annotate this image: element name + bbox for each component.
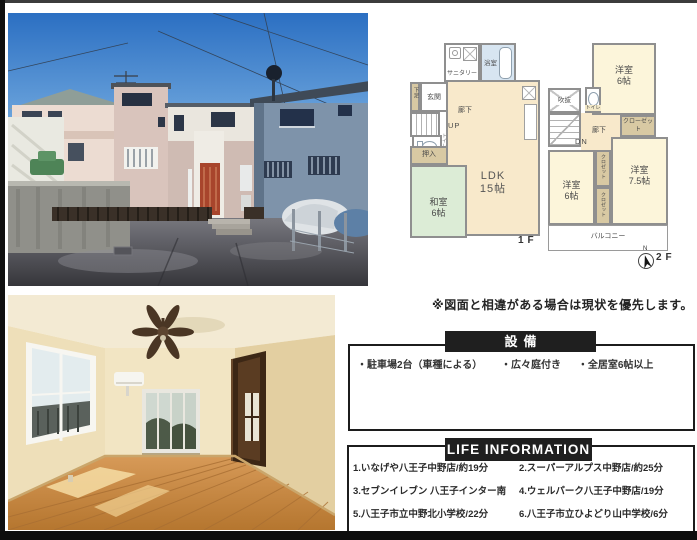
ldk-size: 15帖 [480,183,506,195]
life-information-items: 1.いなげや八王子中野店/約19分 2.スーパーアルプス中野店/約25分 3.セ… [353,462,689,521]
frame-bottom [0,531,697,540]
life-item: 3.セブンイレブン 八王子インター南 [353,485,519,498]
flyer-page: LDK 15帖 サニタリー 浴室 下足 玄関 トイレ 押入 [0,0,697,540]
room1-size: 6帖 [617,76,631,86]
sanitary-label: サニタリー [446,71,478,78]
bathtub-icon [499,47,512,79]
facilities-items: ・駐車場2台（車種による） ・広々庭付き ・全居室6帖以上 [357,356,691,371]
shoes-label: 下足 [412,87,418,98]
closet-small-1: クロゼット [595,150,611,187]
exterior-photo [8,13,368,286]
ldk-label: LDK [481,170,505,182]
compass-needle-icon [640,254,654,269]
facility-item: ・駐車場2台（車種による） [357,356,482,371]
room-bath: 浴室 [480,43,516,82]
toilet-icon-2f [588,92,599,106]
hallway-label-1f: 廊下 [458,107,472,115]
down-label: DN [575,137,588,146]
outlet [68,475,73,482]
washer-icon [449,47,461,59]
room-shoes: 下足 [410,82,420,112]
up-label: UP [448,121,460,130]
void-label: 吹抜 [554,97,574,105]
room1-label: 洋室 [615,65,633,75]
interior-photo [8,295,335,530]
life-item: 4.ウェルパーク八王子中野店/19分 [519,485,689,498]
room-yoshitsu-3: 洋室 7.5帖 [611,137,668,225]
frame-top [0,0,697,3]
left-window [26,342,96,445]
room-entrance: 玄関 [420,82,448,112]
facility-item: ・広々庭付き [501,356,561,371]
closet-main: クローゼット [620,115,656,137]
closet-small-1-label: クロゼット [600,154,605,179]
life-item: 1.いなげや八王子中野店/約19分 [353,462,519,475]
closet-label: クローゼット [622,119,654,135]
washitsu-label: 和室 [429,197,447,207]
room2-label: 洋室 [562,180,580,190]
closet-small-2: クロゼット [595,187,611,225]
hallway-label-2f: 廊下 [592,127,606,135]
facilities-header: 設備 [445,331,596,352]
floorplan-2f: 洋室 6帖 吹抜 トイレ クローゼット 洋室 6帖 クロゼット クロゼット [545,43,677,271]
stairs-1f [410,112,440,137]
toilet-label-2f: トイレ [585,105,601,111]
floorplan-1f: LDK 15帖 サニタリー 浴室 下足 玄関 トイレ 押入 [410,43,542,250]
kitchen-counter-icon [524,104,537,140]
life-item: 6.八王子市立ひよどり山中学校/6分 [519,508,689,521]
room-oshiire: 押入 [410,146,448,165]
facility-item: ・全居室6帖以上 [578,356,654,371]
floor-label-2f: 2F [656,252,676,263]
entrance-label: 玄関 [422,94,446,102]
room-yoshitsu-2: 洋室 6帖 [548,150,595,225]
frame-left [0,0,5,540]
washitsu-size: 6帖 [431,208,445,218]
balcony: バルコニー [548,225,668,251]
disclaimer-note: ※図面と相違がある場合は現状を優先します。 [432,296,693,313]
right-doorway [232,351,266,467]
life-item: 5.八王子市立中野北小学校/22分 [353,508,519,521]
room-toilet-2f: トイレ [585,87,601,113]
balcony-label: バルコニー [549,233,667,241]
oshiire-label: 押入 [412,151,446,159]
floor-label-1f: 1F [518,235,538,246]
patio-door [142,389,200,457]
compass-icon [638,253,654,269]
room3-label: 洋室 [630,165,648,175]
bath-label: 浴室 [484,60,497,68]
room2-size: 6帖 [564,191,578,201]
room-washitsu: 和室 6帖 [410,165,467,238]
room-yoshitsu-1: 洋室 6帖 [592,43,656,115]
exterior-photo-art [8,13,368,286]
compass-north-label: N [643,246,647,253]
room-sanitary: サニタリー [444,43,480,82]
interior-photo-art [8,295,335,530]
life-item: 2.スーパーアルプス中野店/約25分 [519,462,689,475]
room3-size: 7.5帖 [629,176,651,186]
kitchen-sink-icon [522,86,536,100]
room-void: 吹抜 [548,88,581,113]
closet-small-2-label: クロゼット [600,192,605,217]
sanitary-sink-icon [463,47,477,61]
life-information-header: LIFE INFORMATION [445,438,592,461]
